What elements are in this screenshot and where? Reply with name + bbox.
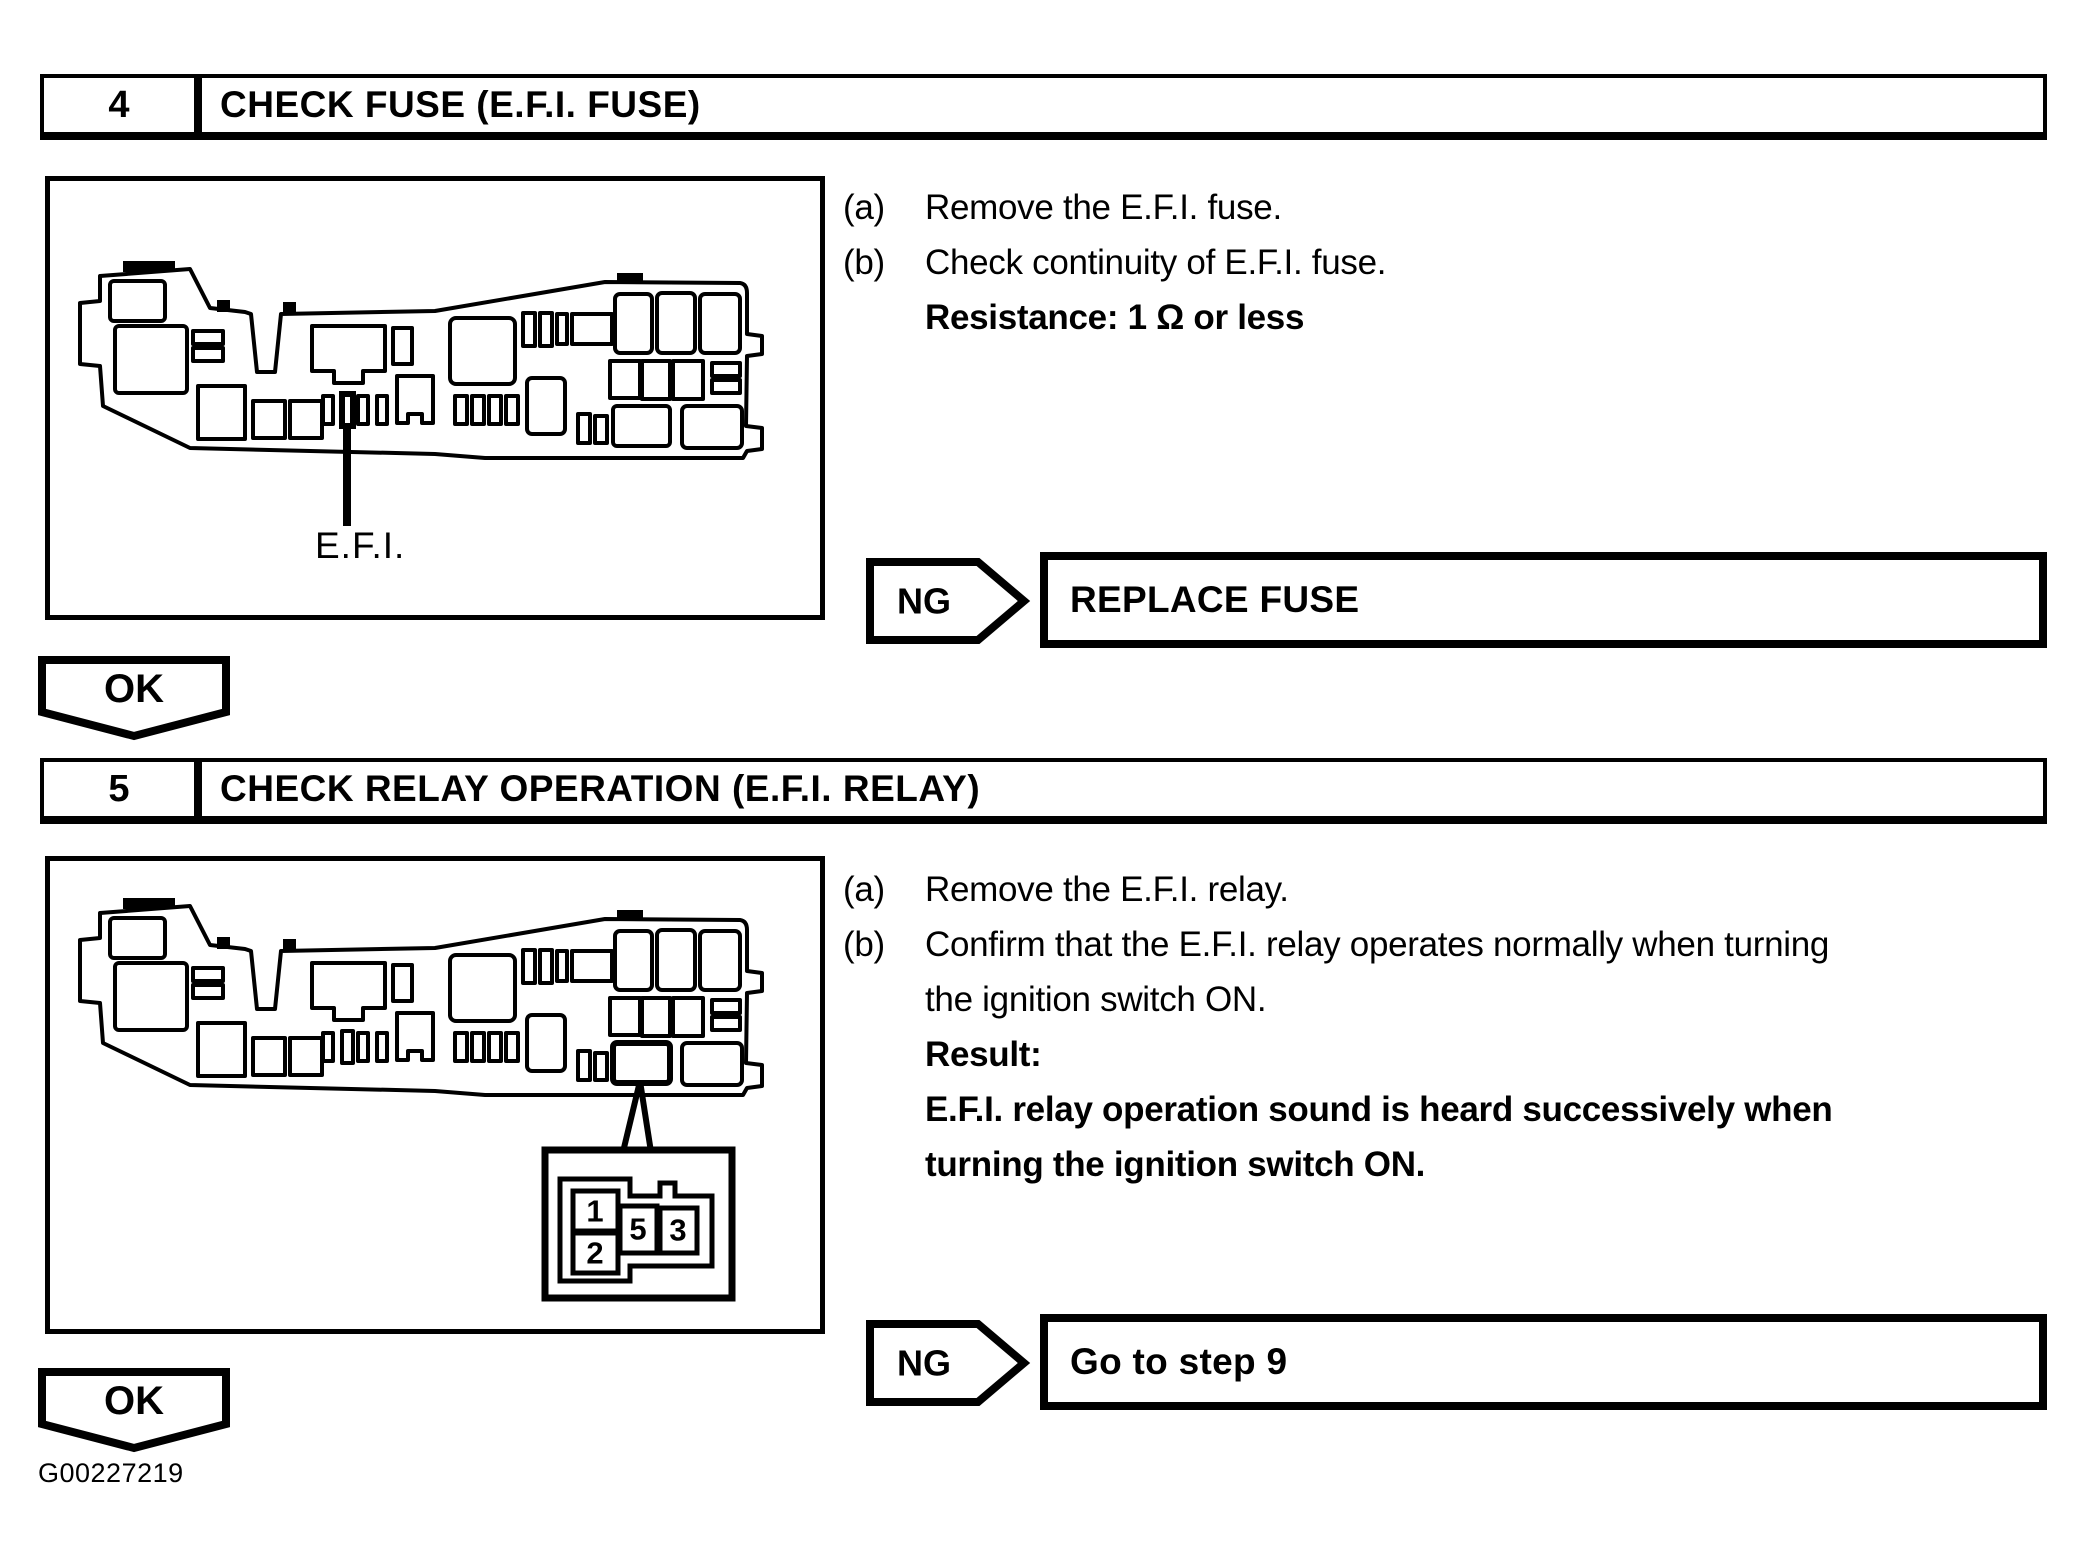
- instruction-b: (b) Check continuity of E.F.I. fuse.: [843, 235, 2053, 290]
- ng-arrow-icon: NG: [864, 554, 1032, 648]
- ok-badge-step4: OK: [36, 654, 232, 746]
- step-5-instructions: (a) Remove the E.F.I. relay. (b) Confirm…: [843, 862, 2053, 1192]
- ok-badge-step5: OK: [36, 1366, 232, 1458]
- figure-id: G00227219: [38, 1458, 184, 1489]
- instruction-text: Remove the E.F.I. relay.: [925, 862, 1289, 917]
- ng-arrow-step4: NG: [864, 554, 1032, 648]
- manual-page: 4 CHECK FUSE (E.F.I. FUSE): [0, 0, 2081, 1555]
- ng-action-text: Go to step 9: [1070, 1341, 1287, 1383]
- step-4-title: CHECK FUSE (E.F.I. FUSE): [202, 78, 2043, 132]
- step-4-instructions: (a) Remove the E.F.I. fuse. (b) Check co…: [843, 180, 2053, 345]
- connector-pin-3: 3: [669, 1213, 686, 1248]
- instruction-label: (b): [843, 235, 925, 290]
- instruction-label: (b): [843, 917, 925, 1027]
- instruction-b: (b) Confirm that the E.F.I. relay operat…: [843, 917, 2053, 1027]
- connector-pin-1: 1: [586, 1194, 603, 1229]
- relay-box-diagram: 1 2 5 3: [50, 861, 820, 1329]
- ng-arrow-icon: NG: [864, 1316, 1032, 1410]
- fuse-box-figure-step4: E.F.I.: [45, 176, 825, 620]
- result-text-line: turning the ignition switch ON.: [925, 1137, 2053, 1192]
- ok-label: OK: [104, 667, 164, 711]
- ok-badge-icon: OK: [36, 1366, 232, 1458]
- result-text-line: E.F.I. relay operation sound is heard su…: [925, 1082, 2053, 1137]
- step-4-number: 4: [44, 78, 202, 132]
- instruction-label: (a): [843, 180, 925, 235]
- fuse-box-diagram: E.F.I.: [50, 181, 820, 615]
- result-label: Result:: [925, 1027, 2053, 1082]
- instruction-text: the ignition switch ON.: [925, 972, 1829, 1027]
- instruction-text: Check continuity of E.F.I. fuse.: [925, 235, 1386, 290]
- efi-fuse-label: E.F.I.: [315, 525, 405, 566]
- ng-label: NG: [897, 581, 951, 622]
- instruction-text: Confirm that the E.F.I. relay operates n…: [925, 917, 1829, 972]
- step-5-header: 5 CHECK RELAY OPERATION (E.F.I. RELAY): [40, 758, 2047, 824]
- step-5-title: CHECK RELAY OPERATION (E.F.I. RELAY): [202, 762, 2043, 816]
- instruction-text: Remove the E.F.I. fuse.: [925, 180, 1282, 235]
- connector-pin-5: 5: [629, 1212, 646, 1247]
- connector-pin-2: 2: [586, 1236, 603, 1271]
- ng-action-step4: REPLACE FUSE: [1040, 552, 2047, 648]
- resistance-spec: Resistance: 1 Ω or less: [925, 290, 2053, 345]
- instruction-a: (a) Remove the E.F.I. relay.: [843, 862, 2053, 917]
- relay-connector-detail: 1 2 5 3: [545, 1150, 732, 1298]
- ok-label: OK: [104, 1379, 164, 1423]
- ng-arrow-step5: NG: [864, 1316, 1032, 1410]
- relay-box-figure-step5: 1 2 5 3: [45, 856, 825, 1334]
- efi-relay-highlight: [613, 1043, 670, 1083]
- efi-fuse-highlight: [342, 394, 353, 426]
- ng-label: NG: [897, 1343, 951, 1384]
- instruction-label: (a): [843, 862, 925, 917]
- instruction-a: (a) Remove the E.F.I. fuse.: [843, 180, 2053, 235]
- ok-badge-icon: OK: [36, 654, 232, 746]
- step-5-number: 5: [44, 762, 202, 816]
- step-4-header: 4 CHECK FUSE (E.F.I. FUSE): [40, 74, 2047, 140]
- ng-action-text: REPLACE FUSE: [1070, 579, 1359, 621]
- ng-action-step5: Go to step 9: [1040, 1314, 2047, 1410]
